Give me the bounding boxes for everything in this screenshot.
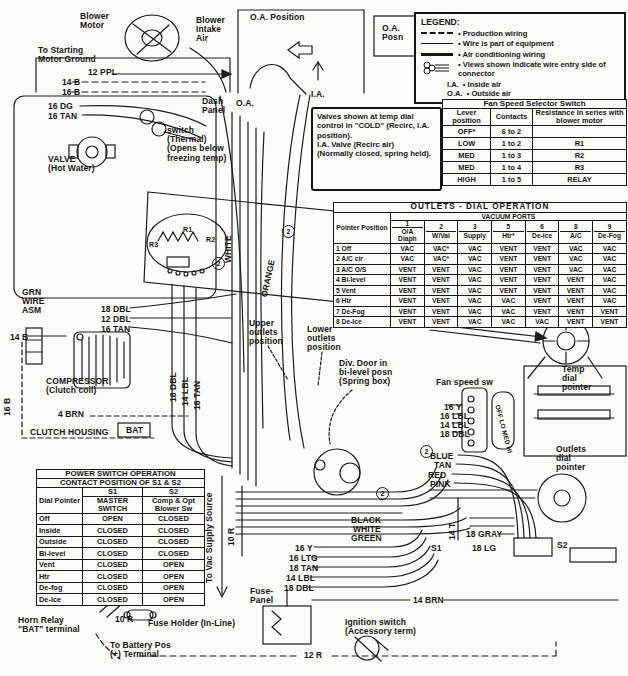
legend-item: Wire is part of equipment [421,39,619,48]
vacuum-state-cell: VENT [391,285,425,296]
wire-16tan-vert-label: 16 TAN [193,381,202,410]
vacuum-state-cell: VAC [559,254,593,265]
vacuum-state-cell: VAC [559,264,593,275]
power-table-title: POWER SWITCH OPERATION [37,470,205,479]
fan-table-cell: R1 [533,137,627,149]
vacuum-state-cell: VENT [525,254,559,265]
legend-item: Views shown indicate wire entry side of … [421,60,619,78]
vacuum-ports-header: VACUUM PORTS [391,212,627,220]
vacuum-state-cell: VENT [492,275,526,286]
vacuum-port-name: De-Ice [527,232,558,239]
ia-label: I.A. [311,90,325,99]
vacuum-state-cell: VENT [525,285,559,296]
vacuum-state-cell: VAC [458,243,492,254]
power-corner-header: Dial Pointer [37,488,83,513]
legend-items: Production wiringWire is part of equipme… [421,29,619,98]
vacuum-state-cell: VAC [492,296,526,307]
div-door-label: Div. Door in bi-level posn (Spring box) [339,359,392,387]
legend-item: Air conditioning wiring [421,50,619,59]
thermal-switch-label: switch (Thermal) (Opens below freezing t… [167,126,227,163]
vacuum-state-cell: VENT [424,285,458,296]
vacuum-state-cell: VENT [525,243,559,254]
vacuum-state-cell: VAC [458,285,492,296]
wire-pink-label: PINK [430,480,451,489]
vacuum-port-header: 2W/Val [424,220,458,243]
clutch-housing-label: CLUTCH HOUSING [30,428,108,437]
fan-table-cell [533,125,627,137]
blower-motor-label: Blower Motor [80,12,109,30]
vacuum-state-cell: VENT [424,317,458,328]
dashed-line-icon [421,32,453,34]
vacuum-state-cell: VENT [559,306,593,317]
s1-column-id: S1 [83,488,143,497]
fan-table-row: HIGH1 to 5RELAY [443,173,627,185]
fan-table-cell: R2 [533,149,627,161]
contact-state-cell: OPEN [143,594,205,606]
vacuum-state-cell: VENT [525,306,559,317]
vacuum-port-number: 3 [459,224,490,232]
vacuum-port-header: 1O/A Diaph [391,220,425,243]
wire-4brn-label: 4 BRN [58,410,84,419]
oa-posn-label: O.A. Posn [382,24,403,42]
power-table-row: De-fogCLOSEDOPEN [37,582,205,594]
legend: LEGEND: Production wiringWire is part of… [414,12,626,104]
pointer-position-label: 5 Vent [334,285,391,296]
wire-14lbl-label-b: 14 LBL [286,574,315,583]
connector-2-marker-b: 2 [212,257,225,270]
switch-s2-label: S2 [557,541,568,550]
s2-column-id: S2 [143,488,205,497]
contact-state-cell: CLOSED [83,525,143,537]
wire-16y-label-b: 16 Y [295,544,313,553]
contact-state-cell: CLOSED [143,525,205,537]
wire-18lg-label: 18 LG [472,544,496,553]
vacuum-state-cell: VENT [492,264,526,275]
wire-green-label: GREEN [351,534,382,543]
contact-state-cell: CLOSED [83,536,143,548]
outlets-table-row: 5 VentVENTVENTVACVENTVENTVENTVAC [334,285,627,296]
wire-16dg-label: 16 DG [48,102,73,111]
legend-title: LEGEND: [421,17,619,27]
fan-table-header: Contacts [491,109,533,126]
contact-state-cell: CLOSED [83,582,143,594]
vacuum-port-name: A/C [560,232,591,239]
fan-table-cell: OFF* [443,125,491,137]
fuse-holder-label: Fuse Holder (In-Line) [148,619,235,628]
contact-state-cell: OPEN [83,513,143,525]
connector-2-marker-c: 2 [420,445,433,458]
vacuum-state-cell: VENT [424,306,458,317]
outlets-table-title: OUTLETS - DIAL OPERATION [334,203,627,213]
wire-12r-label: 12 R [304,651,322,660]
vacuum-state-cell: VENT [559,285,593,296]
vacuum-state-cell: VAC [593,296,627,307]
wire-14t-vert-label: 14 T [448,523,457,540]
vacuum-state-cell: VENT [492,254,526,265]
dial-pointer-label: De-ice [37,594,83,606]
legend-abbreviation: O.A.Outside air [447,89,619,98]
outlets-table-row: 2 A/C cirVACVAC*VACVENTVENTVACVAC [334,254,627,265]
contact-state-cell: CLOSED [143,548,205,560]
fan-table-row: LOW1 to 2R1 [443,137,627,149]
bat-terminal-label: BAT [126,426,143,435]
vacuum-state-cell: VENT [559,317,593,328]
power-table-row: HtrCLOSEDOPEN [37,571,205,583]
vacuum-port-number: 6 [527,224,558,232]
vacuum-state-cell: VENT [424,275,458,286]
fan-table-title: Fan Speed Selector Switch [443,100,627,109]
vacuum-state-cell: VAC [525,317,559,328]
contact-state-cell: CLOSED [83,571,143,583]
vacuum-state-cell: VAC* [424,243,458,254]
resistor-r1-label: R1 [183,226,192,234]
legend-item-label: Wire is part of equipment [458,39,554,48]
grn-wire-asm-label: GRN WIRE ASM [22,288,45,316]
switch-s1-label: S1 [431,544,442,553]
vacuum-state-cell: VAC [391,254,425,265]
outlets-table-row: 4 Bi-levelVENTVENTVACVENTVENTVENTVAC [334,275,627,286]
white-wire-vert-label: WHITE [224,235,233,263]
pointer-position-label: 2 A/C cir [334,254,391,265]
vacuum-state-cell: VAC* [424,254,458,265]
connector-icon [421,60,453,78]
wire-16b-label: 16 B [62,88,80,97]
vacuum-state-cell: VAC [458,296,492,307]
contact-state-cell: OPEN [143,571,205,583]
fan-table-cell: RELAY [533,173,627,185]
vacuum-state-cell: VAC [593,275,627,286]
abbreviation-meaning: Inside air [463,80,501,89]
dial-pointer-label: Htr [37,571,83,583]
pointer-position-label: 8 De-Ice [334,317,391,328]
pointer-position-label: 6 Htr [334,296,391,307]
wire-12ppl-label: 12 PPL [88,68,117,77]
fan-table-header: Resistance in series with blower motor [533,109,627,126]
compressor-label: COMPRESSOR (Clutch coil) [46,377,108,395]
vacuum-port-name: O/A Diaph [392,228,423,242]
outlets-table-row: 3 A/C O/SVENTVENTVACVENTVENTVACVAC [334,264,627,275]
vacuum-state-cell: VENT [492,285,526,296]
contact-state-cell: OPEN [143,582,205,594]
fan-table-cell: HIGH [443,173,491,185]
vacuum-port-number: 1 [392,221,423,229]
vacuum-state-cell: VAC [492,317,526,328]
fan-speed-selector-table: Fan Speed Selector Switch Lever position… [442,99,627,186]
legend-item-label: Views shown indicate wire entry side of … [458,60,619,78]
contact-state-cell: CLOSED [83,548,143,560]
oa-position-label: O.A. Position [250,13,305,22]
vacuum-port-number: 5 [493,224,524,232]
horn-relay-label: Horn Relay "BAT" terminal [18,616,80,634]
vacuum-state-cell: VENT [593,306,627,317]
temp-dial-pointer-label: Temp dial pointer [562,365,592,393]
wire-18dbl-label-c: 18 DBL [284,584,314,593]
vacuum-state-cell: VENT [525,296,559,307]
vacuum-state-cell: VAC [458,264,492,275]
pointer-position-label: 1 Off [334,243,391,254]
fan-table-cell: LOW [443,137,491,149]
wire-14b-label-b: 14 B [10,333,28,342]
s2-column-name: Comp & Opt Blower Sw [143,497,205,514]
dial-pointer-label: De-fog [37,582,83,594]
air-door-drawing [250,42,323,94]
legend-item-label: Air conditioning wiring [458,50,545,59]
oa-label: O.A. [236,99,254,108]
fan-table-row: OFF*6 to 2 [443,125,627,137]
wire-16ltg-label: 16 LTG [289,554,318,563]
outlets-table-row: 6 HtrVENTVENTVACVACVENTVENTVAC [334,296,627,307]
vacuum-port-name: De-Fog [594,232,625,239]
abbreviation-meaning: Outside air [467,89,511,98]
vacuum-state-cell: VAC [458,275,492,286]
wire-18dbl-label-a: 18 DBL [101,305,131,314]
fan-table-cell: 1 to 4 [491,161,533,173]
pointer-position-label: 4 Bi-level [334,275,391,286]
vacuum-port-name: W/Val [426,232,457,239]
fan-table-cell: MED [443,161,491,173]
fuse-panel-label: Fuse- Panel [250,587,273,605]
dial-pointer-label: Inside [37,525,83,537]
vacuum-port-header: 6De-Ice [525,220,559,243]
wire-16tan-label: 16 TAN [48,112,77,121]
vacuum-state-cell: VAC [458,306,492,317]
starting-motor-ground-label: To Starting Motor Ground [38,46,96,64]
outlets-dial-pointer-label: Outlets dial pointer [556,445,586,473]
fan-table-cell: 1 to 5 [491,173,533,185]
blower-intake-air-label: Blower Intake Air [196,16,225,44]
wire-16b-vert-label: 16 B [3,398,12,416]
upper-outlets-label: Upper outlets position [249,319,283,347]
vacuum-port-header: 3Supply [458,220,492,243]
vacuum-state-cell: VAC [559,243,593,254]
outlets-table-row: 1 OffVACVAC*VACVENTVENTVACVAC [334,243,627,254]
abbreviation-term: O.A. [447,89,463,98]
fan-table-cell: 6 to 2 [491,125,533,137]
vacuum-state-cell: VAC [593,243,627,254]
vacuum-port-header: 5Htr* [492,220,526,243]
vacuum-state-cell: VENT [391,296,425,307]
wire-18dbl-vert-label: 18 DBL [169,372,178,402]
vacuum-state-cell: VAC [458,254,492,265]
power-table-row: OffOPENCLOSED [37,513,205,525]
wire-10r-vert-label: 10 R [227,528,236,546]
wire-12dbl-label: 12 DBL [101,315,131,324]
vacuum-state-cell: VAC [593,264,627,275]
vacuum-state-cell: VENT [525,275,559,286]
vacuum-state-cell: VENT [391,275,425,286]
thick-line-icon [421,53,453,56]
wire-10r-label: 10 R [115,615,133,624]
contact-state-cell: CLOSED [83,559,143,571]
vacuum-state-cell: VENT [424,264,458,275]
power-switch-operation-table: POWER SWITCH OPERATION CONTACT POSITION … [36,469,205,606]
s1-column-name: MASTER SWITCH [83,497,143,514]
wire-14b-label: 14 B [62,78,80,87]
power-table-row: VentCLOSEDOPEN [37,559,205,571]
dial-pointer-label: Off [37,513,83,525]
hot-water-valve-label: VALVE (Hot Water) [48,155,95,173]
dial-pointer-label: Outside [37,536,83,548]
power-table-row: OutsideCLOSEDCLOSED [37,536,205,548]
vacuum-state-cell: VENT [593,317,627,328]
vacuum-state-cell: VAC [458,317,492,328]
valves-note: Valves shown at temp dial control in "CO… [311,107,442,191]
fan-table-cell: R3 [533,161,627,173]
power-table-row: Bi-levelCLOSEDCLOSED [37,548,205,560]
fan-table-cell: 1 to 2 [491,137,533,149]
wire-16tan-label-b: 16 TAN [101,325,130,334]
thin-line-icon [421,43,453,44]
vacuum-motor-drawing [314,449,360,495]
vacuum-state-cell: VENT [492,243,526,254]
ignition-switch-drawing [355,636,388,661]
vacuum-port-number: 8 [560,224,591,232]
fan-table-row: MED1 to 4R3 [443,161,627,173]
power-table-subtitle: CONTACT POSITION OF S1 & S2 [37,479,205,488]
legend-item: Production wiring [421,29,619,38]
vacuum-state-cell: VAC [391,243,425,254]
vacuum-port-name: Htr* [493,232,524,239]
fan-table-row: MED1 to 3R2 [443,149,627,161]
resistor-r2-label: R2 [206,236,215,244]
contact-state-cell: CLOSED [143,536,205,548]
vacuum-state-cell: VAC [492,306,526,317]
vacuum-state-cell: VENT [391,264,425,275]
resistor-r3-label: R3 [149,241,158,249]
outlets-dial-operation-table: OUTLETS - DIAL OPERATION Pointer Positio… [333,202,627,328]
vacuum-state-cell: VENT [525,264,559,275]
vacuum-port-number: 9 [594,224,625,232]
vacuum-state-cell: VENT [391,306,425,317]
outlets-table-row: 7 De-FogVENTVENTVACVACVENTVENTVENT [334,306,627,317]
connector-2-marker-a: 2 [282,225,295,238]
wire-18tan-label: 18 TAN [289,564,318,573]
to-vac-supply-label: To Vac Supply Source [205,492,214,583]
power-table-row: InsideCLOSEDCLOSED [37,525,205,537]
wire-14lbl-vert-label: 14 LBL [181,377,190,406]
lower-outlets-label: Lower outlets position [307,325,341,353]
power-table-row: De-iceCLOSEDOPEN [37,594,205,606]
legend-item-label: Production wiring [458,29,527,38]
hvac-wiring-diagram: Blower MotorBlower Intake AirO.A. Positi… [0,0,628,676]
vacuum-state-cell: VENT [559,275,593,286]
fan-table-cell: MED [443,149,491,161]
wire-18dbl-label-b: 18 DBL [440,430,470,439]
pointer-position-label: 3 A/C O/S [334,264,391,275]
fuse-panel-drawing [263,606,311,644]
vacuum-state-cell: VAC [593,285,627,296]
contact-state-cell: OPEN [143,559,205,571]
outlets-corner-header: Pointer Position [334,212,391,243]
contact-state-cell: CLOSED [83,594,143,606]
fan-table-cell: 1 to 3 [491,149,533,161]
legend-abbreviation: I.A.Inside air [447,80,619,89]
vacuum-state-cell: VENT [559,296,593,307]
vacuum-state-cell: VENT [424,296,458,307]
contact-state-cell: CLOSED [143,513,205,525]
wire-18gray-label: 18 GRAY [466,530,502,539]
pointer-position-label: 7 De-Fog [334,306,391,317]
vacuum-port-header: 8A/C [559,220,593,243]
dial-pointer-label: Vent [37,559,83,571]
vacuum-port-name: Supply [459,232,490,239]
vacuum-port-number: 2 [426,224,457,232]
outlets-table-row: 8 De-IceVENTVENTVACVACVACVENTVENT [334,317,627,328]
to-battery-label: To Battery Pos (+) Terminal [110,641,171,659]
vacuum-port-header: 9De-Fog [593,220,627,243]
ignition-switch-label: Ignition switch (Accessory term) [345,618,416,636]
vacuum-state-cell: VENT [391,317,425,328]
dial-pointer-label: Bi-level [37,548,83,560]
dash-panel-label: Dash Panel [202,97,225,115]
abbreviation-term: I.A. [447,80,459,89]
wire-14brn-label: 14 BRN [413,596,444,605]
fan-table-header: Lever position [443,109,491,126]
connector-2-marker-d: 2 [376,487,389,500]
wire-tan-label: TAN [434,461,451,470]
vacuum-state-cell: VAC [593,254,627,265]
fan-speed-sw-label: Fan speed sw [436,378,493,387]
